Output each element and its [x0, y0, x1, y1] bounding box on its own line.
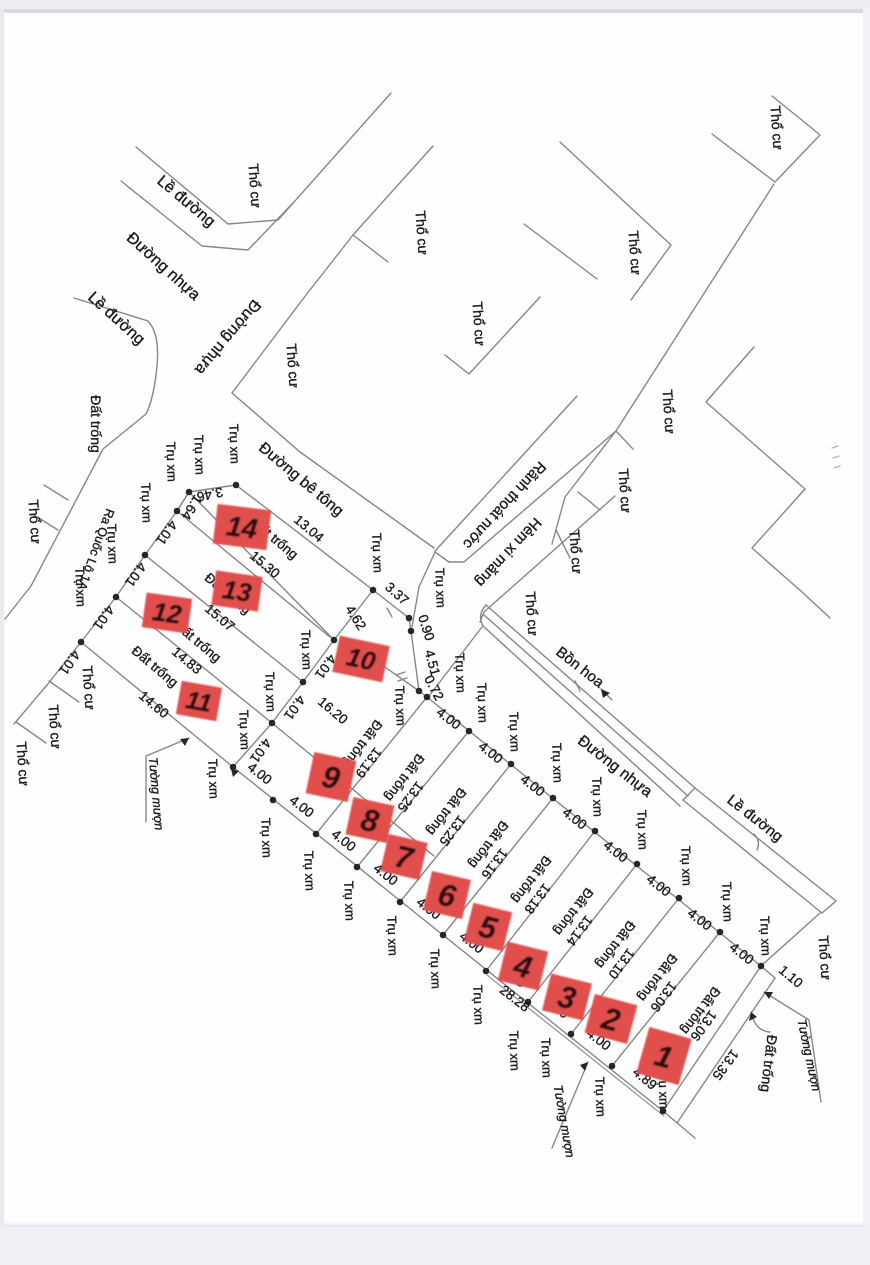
- svg-text:Đất trống: Đất trống: [758, 1034, 781, 1093]
- svg-text:Thổ cư: Thổ cư: [25, 499, 44, 544]
- svg-text:Thổ cư: Thổ cư: [522, 591, 541, 636]
- svg-text:0.90: 0.90: [415, 613, 437, 643]
- svg-text:3.37: 3.37: [382, 579, 412, 608]
- svg-text:Trụ xm: Trụ xm: [506, 1031, 522, 1071]
- svg-text:Trụ xm: Trụ xm: [392, 686, 408, 726]
- svg-text:Trụ xm: Trụ xm: [538, 1038, 554, 1078]
- svg-text:Đường bê tông: Đường bê tông: [255, 439, 346, 520]
- svg-text:Trụ xm: Trụ xm: [369, 533, 385, 573]
- svg-text:Thổ cư: Thổ cư: [412, 210, 431, 255]
- svg-text:Trụ xm: Trụ xm: [72, 567, 88, 607]
- svg-text:4.00: 4.00: [245, 759, 275, 787]
- svg-text:Trụ xm: Trụ xm: [474, 683, 490, 723]
- svg-text:Trụ xm: Trụ xm: [634, 810, 650, 850]
- svg-text:Trụ xm: Trụ xm: [549, 743, 565, 783]
- svg-text:Trụ xm: Trụ xm: [258, 818, 274, 858]
- svg-text:Trụ xm: Trụ xm: [341, 881, 357, 921]
- svg-text:Trụ xm: Trụ xm: [138, 483, 154, 523]
- svg-text:Trụ xm: Trụ xm: [452, 653, 468, 693]
- svg-text:Trụ xm: Trụ xm: [589, 777, 605, 817]
- svg-text:Tường mượn: Tường mượn: [146, 757, 166, 831]
- svg-text:Trụ xm: Trụ xm: [592, 1077, 608, 1117]
- svg-text:Tường mượn: Tường mượn: [794, 1018, 823, 1093]
- svg-text:16.20: 16.20: [315, 694, 351, 727]
- svg-text:Thổ cư: Thổ cư: [566, 529, 585, 574]
- svg-text:4.01: 4.01: [281, 693, 308, 723]
- svg-text:4.00: 4.00: [434, 704, 464, 732]
- svg-text:Lề đường: Lề đường: [154, 172, 219, 230]
- svg-text:Trụ xm: Trụ xm: [432, 568, 448, 608]
- svg-text:4.01: 4.01: [153, 518, 180, 548]
- svg-text:Tường mượn: Tường mượn: [551, 1084, 578, 1159]
- svg-text:14: 14: [225, 510, 260, 545]
- svg-text:4.00: 4.00: [601, 837, 631, 865]
- svg-text:Đất trống: Đất trống: [88, 395, 104, 453]
- svg-text:Trụ xm: Trụ xm: [470, 985, 486, 1025]
- svg-text:4.00: 4.00: [685, 905, 715, 933]
- svg-text:13: 13: [221, 574, 254, 608]
- svg-text:Trụ xm: Trụ xm: [226, 424, 242, 464]
- svg-text:Trụ xm: Trụ xm: [384, 916, 400, 956]
- svg-text:Đường nhựa: Đường nhựa: [123, 229, 203, 304]
- svg-text:Trụ xm: Trụ xm: [262, 672, 278, 712]
- svg-text:Thổ cư: Thổ cư: [815, 935, 834, 980]
- svg-text:Thổ cư: Thổ cư: [245, 163, 264, 208]
- svg-text:Trụ xm: Trụ xm: [301, 851, 317, 891]
- svg-text:Trụ xm: Trụ xm: [104, 524, 120, 564]
- svg-text:Trụ xm: Trụ xm: [678, 846, 694, 886]
- svg-text:4.00: 4.00: [727, 939, 757, 967]
- svg-text:12: 12: [151, 596, 184, 630]
- svg-text:4.01: 4.01: [56, 648, 83, 678]
- svg-text:Trụ xm: Trụ xm: [191, 435, 207, 475]
- svg-text:Thổ cư: Thổ cư: [615, 468, 634, 513]
- svg-text:14.60: 14.60: [136, 688, 172, 721]
- svg-text:Trụ xm: Trụ xm: [236, 710, 252, 750]
- svg-text:4.00: 4.00: [518, 771, 548, 799]
- svg-text:11: 11: [184, 686, 214, 718]
- svg-text:Trụ xm: Trụ xm: [298, 630, 314, 670]
- svg-text:Trụ xm: Trụ xm: [506, 712, 522, 752]
- svg-text:Thổ cư: Thổ cư: [13, 741, 32, 786]
- svg-text:Trụ xm: Trụ xm: [757, 916, 773, 956]
- svg-text:Rãnh thoát nước: Rãnh thoát nước: [459, 458, 549, 553]
- svg-text:Trụ xm: Trụ xm: [427, 949, 443, 989]
- svg-text:4.00: 4.00: [287, 792, 317, 820]
- svg-text:4.62: 4.62: [342, 602, 369, 632]
- svg-text:Thổ cư: Thổ cư: [659, 389, 678, 434]
- svg-text:Thổ cư: Thổ cư: [469, 301, 488, 346]
- svg-text:4.00: 4.00: [560, 804, 590, 832]
- svg-text:Trụ xm: Trụ xm: [205, 759, 221, 799]
- svg-text:1.64: 1.64: [178, 492, 205, 523]
- svg-text:4.01: 4.01: [122, 560, 149, 590]
- svg-text:Thổ cư: Thổ cư: [45, 704, 64, 749]
- svg-text:4.00: 4.00: [476, 738, 506, 766]
- svg-text:Thổ cư: Thổ cư: [767, 105, 786, 150]
- svg-text:Trụ xm: Trụ xm: [719, 882, 735, 922]
- svg-text:Thổ cư: Thổ cư: [79, 665, 98, 710]
- svg-text:Thổ cư: Thổ cư: [625, 230, 644, 275]
- svg-text:1.10: 1.10: [776, 962, 806, 990]
- svg-text:Thổ cư: Thổ cư: [283, 343, 302, 388]
- svg-text:Trụ xm: Trụ xm: [163, 442, 179, 482]
- svg-text:4.01: 4.01: [90, 603, 117, 633]
- svg-text:Bồn hoa: Bồn hoa: [553, 644, 608, 692]
